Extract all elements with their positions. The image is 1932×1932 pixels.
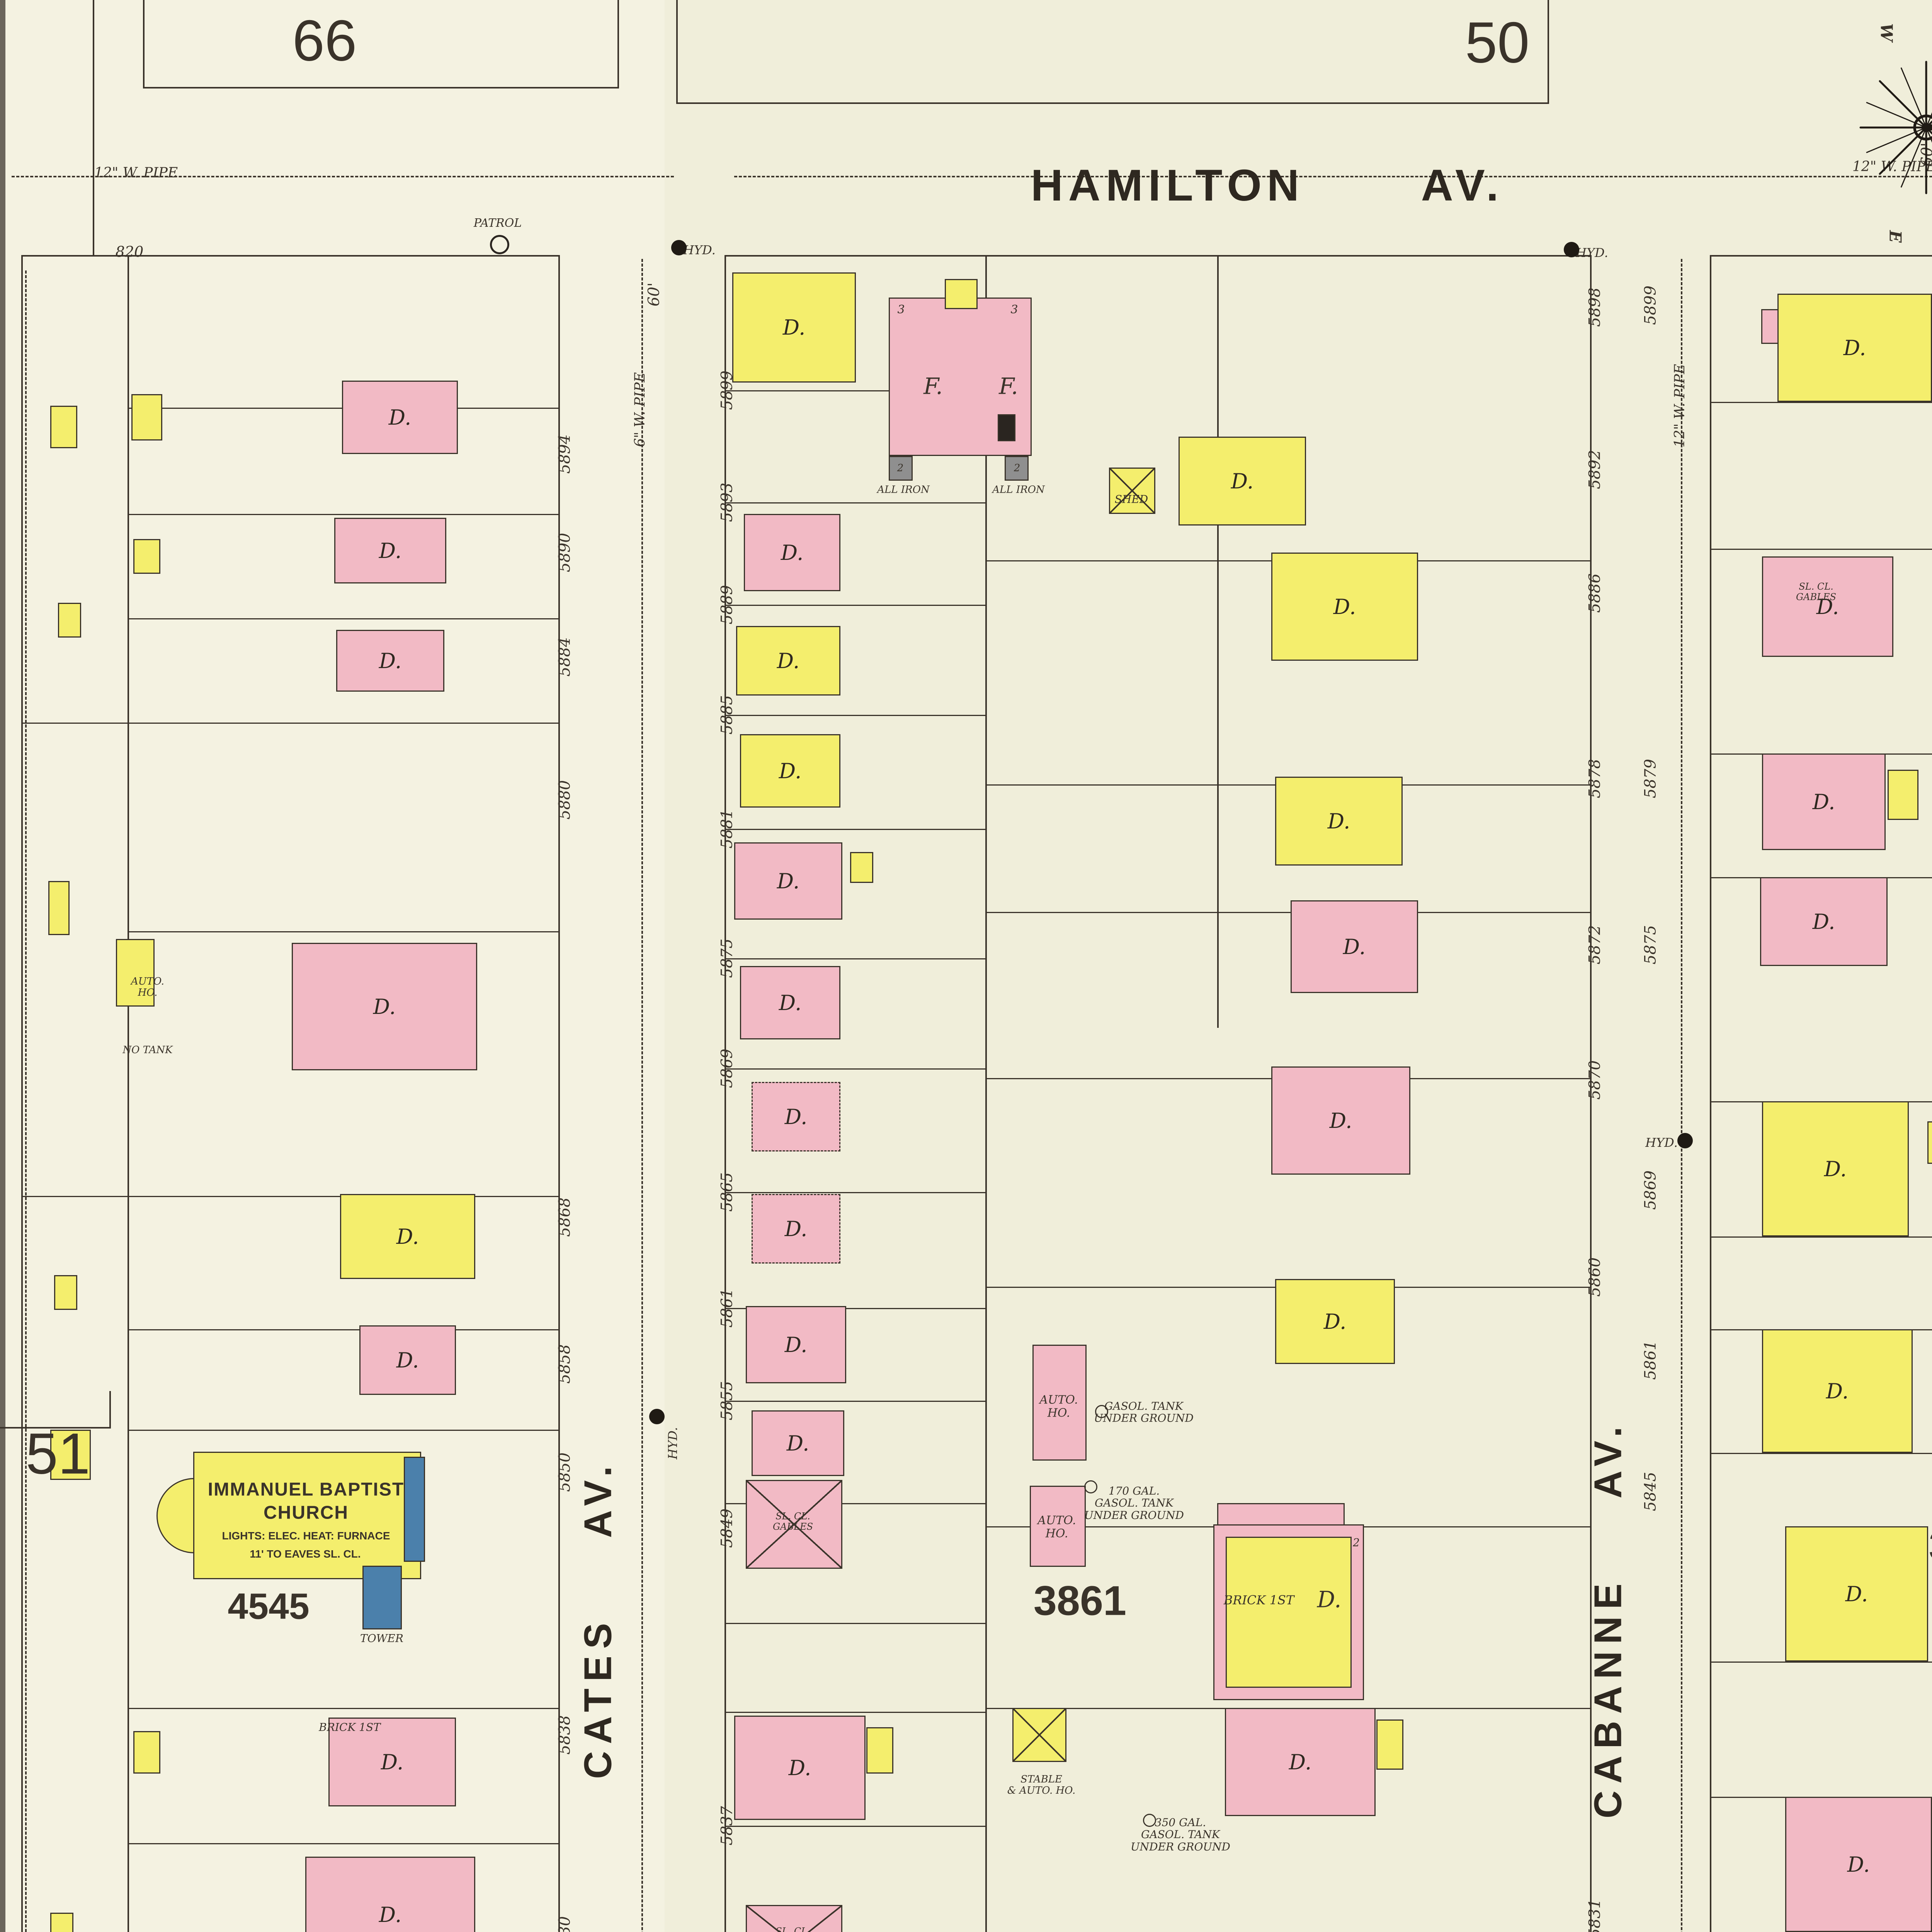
lot-line (128, 255, 129, 1932)
map-label: STABLE & AUTO. HO. (1007, 1774, 1076, 1796)
building: D. (292, 943, 477, 1070)
lot-line (724, 1401, 985, 1402)
map-label: HYD. (1576, 246, 1608, 260)
map-label: 820 (116, 244, 144, 260)
map-label: 2 (1014, 463, 1020, 474)
map-label: 5849 (719, 1509, 736, 1548)
lot-line (143, 0, 145, 88)
building: D. (732, 272, 856, 383)
lot-line (724, 605, 985, 606)
map-label: 5884 (556, 637, 574, 677)
building: D. (1271, 553, 1418, 661)
map-label: 5881 (719, 809, 736, 849)
building (50, 406, 77, 448)
map-label: 5837 (719, 1806, 736, 1845)
building-label: D. (381, 1750, 404, 1774)
gas-tank-circle (1095, 1405, 1108, 1418)
building-label: D. (781, 541, 804, 565)
map-label: BRICK 1ST (1224, 1594, 1294, 1607)
lot-line (93, 0, 94, 255)
building (48, 881, 70, 935)
map-label: ALL IRON (877, 484, 929, 495)
hydrant-dot (649, 1409, 665, 1424)
building-label: D. (785, 1217, 808, 1241)
map-label: 2 (897, 463, 904, 474)
lot-line (128, 723, 558, 724)
map-label: 5865 (719, 1172, 736, 1212)
building-label: D. (1231, 469, 1254, 493)
building: D. (1225, 1708, 1376, 1816)
lot-line (724, 502, 985, 503)
building (54, 1275, 77, 1310)
map-label: 3 (897, 303, 905, 316)
lot-line (724, 1826, 985, 1827)
building (131, 394, 162, 440)
water-pipe-line (25, 270, 27, 1932)
map-label: 5886 (1587, 573, 1604, 613)
lot-line (985, 255, 987, 1932)
map-label: BRICK 1ST (319, 1721, 381, 1733)
building: D. (305, 1857, 475, 1932)
lot-line (1710, 402, 1932, 403)
building (1761, 309, 1779, 344)
building-label: D. (1333, 595, 1356, 619)
building (1012, 1708, 1066, 1762)
map-label: 5875 (719, 939, 736, 978)
building (1888, 770, 1918, 820)
map-label: 5879 (1642, 759, 1660, 798)
map-label: SL. CL. GABLES (773, 1511, 813, 1532)
patrol-box-ring (490, 235, 509, 254)
building (1376, 1719, 1403, 1770)
lot-line (128, 931, 558, 932)
map-label: 12" W. PIPE (94, 165, 178, 181)
map-label: 5855 (719, 1381, 736, 1420)
building-label: D. (389, 405, 412, 430)
lot-line (724, 255, 1592, 257)
building (866, 1727, 893, 1774)
map-label: GASOL. TANK UNDER GROUND (1094, 1400, 1194, 1425)
map-label: ALL IRON (992, 484, 1044, 495)
building (133, 539, 160, 574)
map-label: PATROL (474, 217, 522, 230)
building: D. (1179, 437, 1306, 526)
church-detail-line2: 11' TO EAVES SL. CL. (250, 1548, 361, 1560)
map-label: D. (1317, 1587, 1342, 1612)
compass-rose-icon (1793, 39, 1932, 240)
map-label: 5885 (719, 695, 736, 735)
building-label: D. (779, 991, 802, 1015)
lot-line (724, 829, 985, 830)
map-label: 12" W. PIPE (1672, 364, 1688, 447)
building-label: D. (789, 1756, 811, 1780)
lot-line (724, 1192, 985, 1193)
map-label: 5831 (1587, 1899, 1604, 1932)
building-label: D. (1343, 935, 1366, 959)
lot-line (558, 255, 560, 1932)
map-label: F. (923, 374, 943, 399)
map-label: 5898 (1587, 287, 1604, 327)
lot-line (724, 1068, 985, 1070)
lot-line (617, 0, 619, 88)
map-label: 5894 (556, 434, 574, 474)
building-label: D. (396, 1348, 419, 1372)
sanborn-map-sheet: D.D.D.D.D.D.D.D.D.D.D.D.D.D.D.D.D.D.D.D.… (0, 0, 1932, 1932)
map-label: HYD. (683, 243, 716, 257)
building: D. (736, 626, 840, 696)
building (945, 279, 978, 309)
map-label: 5861 (719, 1288, 736, 1328)
building (404, 1457, 425, 1562)
map-label: 5850 (556, 1452, 574, 1492)
hydrant-dot (1677, 1133, 1693, 1148)
map-label: NO TANK (122, 1044, 172, 1056)
building-label: D. (777, 869, 800, 893)
map-label: 5875 (1642, 925, 1660, 964)
lot-line (128, 618, 558, 619)
building-label: D. (787, 1431, 810, 1456)
lot-line (128, 514, 558, 515)
water-pipe-line (641, 259, 643, 1932)
street-label-cabanne: CABANNE AV. (1586, 1420, 1631, 1818)
building-label: D. (1813, 790, 1835, 814)
building: D. (1271, 1066, 1410, 1175)
lot-line (1710, 255, 1932, 257)
lot-line (21, 255, 560, 257)
building: D. (1762, 1101, 1909, 1236)
block-number-3862: 3862 (1929, 1522, 1932, 1570)
building: D. (1275, 1279, 1395, 1364)
lot-line (1710, 1453, 1932, 1454)
church-name-line2: CHURCH (264, 1502, 349, 1524)
building: D. (752, 1410, 844, 1476)
building-label: D. (396, 1225, 419, 1249)
building-label: D. (777, 649, 800, 673)
building (58, 603, 81, 638)
building-label: D. (779, 759, 802, 783)
map-label: 5890 (556, 533, 574, 572)
adjacent-sheet-51: 51 (26, 1420, 90, 1487)
church-name-line1: IMMANUEL BAPTIST (208, 1479, 404, 1500)
map-label: 5830 (556, 1916, 574, 1932)
building-label: D. (1847, 1852, 1870, 1877)
building-label: D. (1289, 1750, 1312, 1774)
map-label: 6" W. PIPE (633, 372, 648, 447)
building-label: D. (783, 315, 806, 340)
church-detail-line1: LIGHTS: ELEC. HEAT: FURNACE (222, 1530, 390, 1542)
map-label: 5878 (1587, 759, 1604, 798)
map-label: AUTO. HO. (1037, 1514, 1076, 1540)
building: D. (746, 1306, 846, 1383)
building-label: D. (1813, 910, 1835, 934)
lot-line (1548, 0, 1549, 104)
map-label: 3 (1010, 303, 1018, 316)
lot-line (724, 958, 985, 959)
block-number-3861: 3861 (1034, 1577, 1126, 1625)
map-label: SHED (1115, 493, 1148, 505)
street-label-cates: CATES AV. (576, 1459, 621, 1779)
building (1927, 1121, 1932, 1164)
building (362, 1566, 402, 1629)
building: D. (359, 1325, 456, 1395)
lot-line (109, 1391, 111, 1429)
building-label: D. (785, 1105, 808, 1129)
building: D. (1785, 1797, 1932, 1932)
building-label: D. (379, 1903, 402, 1927)
building-label: D. (1330, 1109, 1352, 1133)
map-label: 5880 (556, 780, 574, 820)
building-label: D. (1826, 1379, 1849, 1403)
lot-line (1710, 255, 1711, 1932)
lot-line (21, 723, 129, 724)
adjacent-sheet-66: 66 (293, 7, 357, 74)
map-label: HYD. (666, 1427, 680, 1459)
building: D. (1785, 1526, 1928, 1662)
hydrant-dot (671, 240, 687, 255)
building: D. (734, 842, 842, 920)
map-label: 5858 (556, 1344, 574, 1384)
map-label: 2 (1353, 1536, 1360, 1548)
gas-tank-circle (1143, 1814, 1156, 1827)
map-label: 5868 (556, 1197, 574, 1237)
map-label: 5845 (1642, 1472, 1660, 1511)
map-label: 60' (646, 282, 663, 306)
building: D. (340, 1194, 475, 1279)
map-label: 5869 (1642, 1170, 1660, 1210)
building-label: D. (1324, 1310, 1347, 1334)
building-label: D. (379, 649, 402, 673)
map-label: 5870 (1587, 1060, 1604, 1100)
map-label: 5899 (719, 371, 736, 410)
map-annotation-layer: D.D.D.D.D.D.D.D.D.D.D.D.D.D.D.D.D.D.D.D.… (0, 0, 1932, 1932)
lot-line (724, 1712, 985, 1713)
compass-west-label: W (1877, 23, 1896, 41)
block-number-4545: 4545 (228, 1586, 309, 1628)
lot-line (724, 1623, 985, 1624)
compass-east-label: E (1886, 230, 1905, 243)
building: D. (740, 734, 840, 808)
building (133, 1731, 160, 1774)
map-label: 5860 (1587, 1257, 1604, 1297)
building: D. (1275, 777, 1403, 866)
lot-line (676, 0, 678, 104)
building: D. (1291, 900, 1418, 993)
map-label: 170 GAL. GASOL. TANK UNDER GROUND (1084, 1485, 1184, 1521)
building: D. (752, 1194, 840, 1264)
building-label: D. (1844, 336, 1866, 360)
building: D. (734, 1716, 866, 1820)
building: D. (1760, 877, 1888, 966)
lot-line (21, 255, 23, 1932)
map-label: 5893 (719, 483, 736, 522)
building: D. (336, 630, 444, 692)
building: D. (334, 518, 446, 583)
lot-line (1710, 1662, 1932, 1663)
lot-line (1710, 549, 1932, 550)
building-label: D. (373, 995, 396, 1019)
lot-line (128, 1708, 558, 1709)
map-label: SL. CL. GABLES (1796, 582, 1836, 602)
lot-line (724, 715, 985, 716)
map-label: TOWER (360, 1632, 403, 1644)
building-label: D. (1845, 1582, 1868, 1606)
map-label: 5899 (1642, 286, 1660, 325)
building (998, 414, 1015, 441)
building: D. (1762, 556, 1893, 657)
building (50, 1913, 73, 1932)
map-label: HYD. (1645, 1136, 1678, 1150)
lot-line (128, 1843, 558, 1844)
street-label-hamilton: HAMILTON AV. (1031, 160, 1504, 211)
lot-line (143, 87, 619, 88)
water-pipe-line (1681, 259, 1682, 1932)
building: D. (1762, 1329, 1913, 1453)
building: D. (752, 1082, 840, 1151)
map-label: F. (999, 374, 1018, 399)
building (850, 852, 873, 883)
building-label: D. (379, 539, 402, 563)
map-label: 5889 (719, 585, 736, 624)
lot-line (21, 1196, 129, 1197)
building-label: D. (785, 1333, 808, 1357)
adjacent-sheet-50: 50 (1465, 9, 1530, 76)
building: D. (1777, 294, 1932, 402)
map-label: SL. CL. GABLES (773, 1926, 813, 1932)
gas-tank-circle (1084, 1480, 1097, 1493)
map-label: 5869 (719, 1049, 736, 1088)
building: D. (1762, 753, 1886, 850)
lot-line (1710, 1236, 1932, 1238)
lot-line (128, 1329, 558, 1330)
building: D. (744, 514, 840, 591)
building-label: D. (1328, 809, 1350, 833)
hydrant-dot (1564, 242, 1579, 257)
building (1109, 468, 1155, 514)
lot-line (985, 912, 1590, 913)
lot-line (128, 1430, 558, 1431)
map-label: 5872 (1587, 925, 1604, 964)
map-label: 5838 (556, 1715, 574, 1755)
map-label: 5892 (1587, 450, 1604, 489)
lot-line (676, 102, 1549, 104)
map-label: 5861 (1642, 1340, 1660, 1380)
building (1217, 1503, 1345, 1526)
map-label: AUTO. HO. (1039, 1393, 1078, 1419)
building-label: D. (1824, 1157, 1847, 1181)
building: D. (740, 966, 840, 1039)
map-label: AUTO. HO. (131, 976, 164, 998)
building: D. (342, 381, 458, 454)
